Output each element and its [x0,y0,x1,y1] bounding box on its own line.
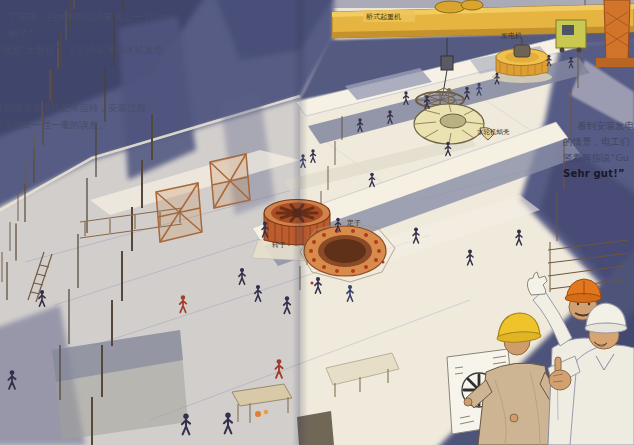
right-paragraph: 看到安装发电 的情景，电工们 竖着拇指说“Gu Sehr gut!” [563,118,634,182]
text-line: 机。 [0,59,167,76]
text-line: 看到安装发电 [563,118,634,134]
book-spine-shadow [292,0,308,445]
label-spiral-case: 水轮机蜗壳 [477,128,510,137]
left-paragraph-2: 要想保证发电机正常运转，安装过程 中不能出一丝一毫的误差。 [0,100,154,133]
text-line: 中不能出一丝一毫的误差。 [0,117,154,134]
cab-window [562,25,574,35]
label-rotor: 转子 [272,240,286,250]
generator-cap [514,45,530,57]
crane-trolley [435,1,465,13]
crane-trolley [461,0,483,10]
label-stator: 定子 [347,218,361,228]
book-photo: 厂房里，巨大的机组还要装上一个“大帽子”， 那就是“大电机”，它们合起来叫水轮发… [0,0,634,445]
left-paragraph-1: 厂房里，巨大的机组还要装上一个“大帽子”， 那就是“大电机”，它们合起来叫水轮发… [0,9,167,75]
text-line: 的情景，电工们 [563,134,634,150]
thumbs-up-fist [549,370,571,390]
label-generator: 发电机 [501,31,522,41]
label-bridge-crane: 桥式起重机 [366,12,401,22]
crane-hook-block [441,56,453,70]
text-line: 那就是“大电机”，它们合起来叫水轮发电 [0,42,167,59]
text-line: 厂房里，巨大的机组还要装上一个“大帽子”， [0,9,167,42]
text-line: 要想保证发电机正常运转，安装过程 [0,100,154,117]
text-line: 竖着拇指说“Gu [563,150,634,166]
german-exclamation: Sehr gut!” [563,166,634,182]
